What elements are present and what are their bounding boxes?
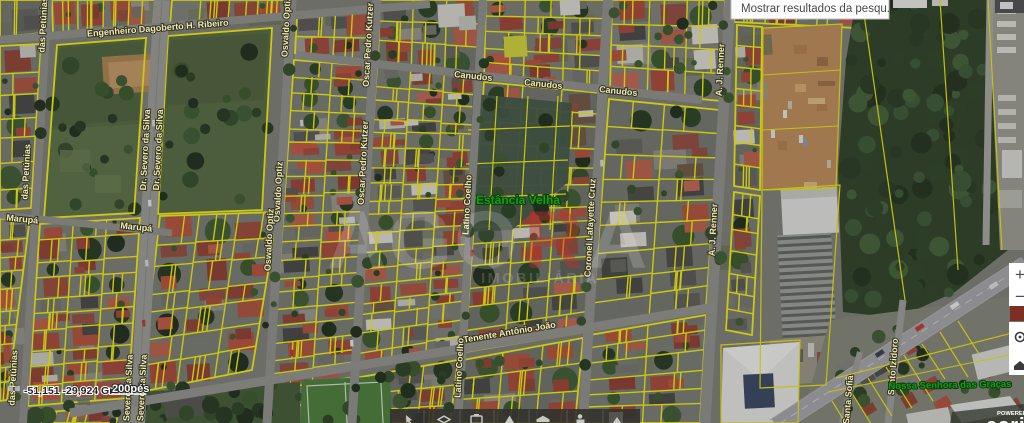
svg-text:Mostrar resultados da pesqu...: Mostrar resultados da pesqu...: [741, 3, 896, 15]
svg-text:+: +: [1015, 265, 1024, 284]
svg-text:200pés: 200pés: [112, 383, 149, 395]
svg-text:-51,151 -29,924 Gra: -51,151 -29,924 Gra: [24, 385, 119, 397]
svg-text:Nossa Senhora das Graças: Nossa Senhora das Graças: [888, 379, 1011, 392]
svg-text:IMOBILIÁRIA: IMOBILIÁRIA: [481, 270, 599, 287]
svg-text:−: −: [1015, 287, 1024, 306]
svg-text:esri: esri: [986, 415, 1024, 423]
